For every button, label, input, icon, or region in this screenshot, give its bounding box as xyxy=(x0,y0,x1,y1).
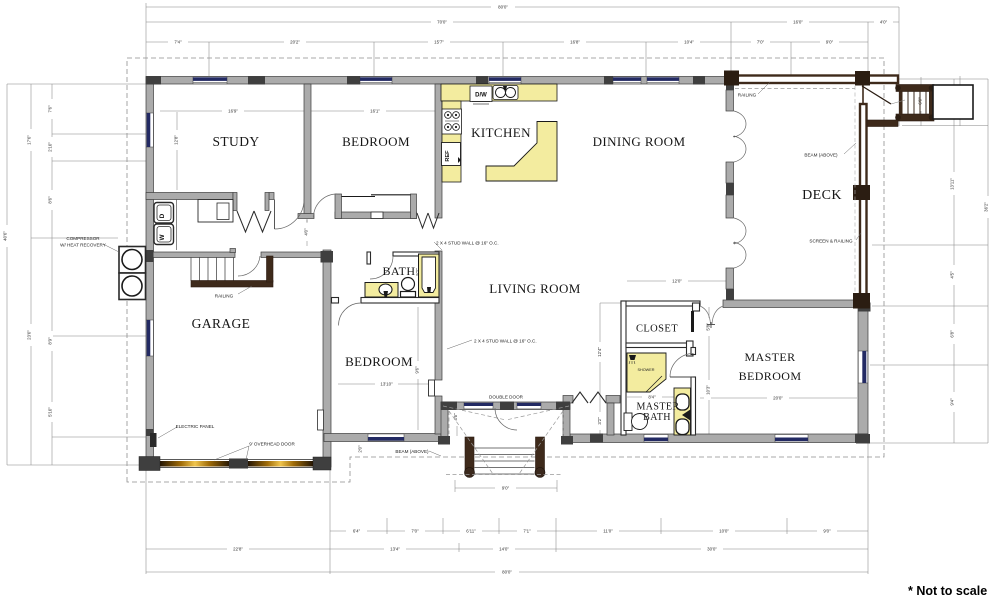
svg-text:MASTER: MASTER xyxy=(637,402,680,413)
svg-text:2 X 4 STUD WALL @ 16" O.C.: 2 X 4 STUD WALL @ 16" O.C. xyxy=(474,339,537,344)
svg-text:2 X 4 STUD WALL @ 16" O.C.: 2 X 4 STUD WALL @ 16" O.C. xyxy=(436,241,499,246)
svg-text:10'0": 10'0" xyxy=(719,529,729,534)
svg-text:GARAGE: GARAGE xyxy=(192,316,251,331)
svg-text:4'5": 4'5" xyxy=(950,271,955,279)
svg-text:80'0": 80'0" xyxy=(502,570,512,575)
svg-text:12'0": 12'0" xyxy=(672,279,682,284)
svg-text:ELECTRIC PANEL: ELECTRIC PANEL xyxy=(176,424,215,429)
svg-text:13'11": 13'11" xyxy=(950,178,955,190)
svg-text:* Not to scale: * Not to scale xyxy=(908,584,987,598)
svg-text:4'6": 4'6" xyxy=(453,413,458,421)
svg-text:8'6": 8'6" xyxy=(48,196,53,204)
svg-text:BEAM (ABOVE): BEAM (ABOVE) xyxy=(395,449,429,454)
svg-text:2'0": 2'0" xyxy=(358,445,363,453)
svg-text:RAILING: RAILING xyxy=(738,93,757,98)
svg-text:BATH: BATH xyxy=(383,264,416,278)
svg-text:BATH: BATH xyxy=(643,412,671,423)
svg-text:14'0": 14'0" xyxy=(499,547,509,552)
svg-text:D: D xyxy=(159,213,166,218)
svg-text:9'0": 9'0" xyxy=(823,529,831,534)
svg-text:7'1": 7'1" xyxy=(523,529,531,534)
svg-text:9'6": 9'6" xyxy=(415,366,420,374)
svg-text:6'4": 6'4" xyxy=(353,529,361,534)
svg-text:BEDROOM: BEDROOM xyxy=(345,354,413,369)
svg-text:4'0": 4'0" xyxy=(304,228,309,236)
svg-text:12'4": 12'4" xyxy=(597,347,602,357)
svg-text:5'10": 5'10" xyxy=(48,407,53,417)
svg-text:DOUBLE DOOR: DOUBLE DOOR xyxy=(489,395,524,400)
svg-text:40'6": 40'6" xyxy=(3,231,8,241)
svg-text:W: W xyxy=(159,234,166,240)
svg-text:MASTER: MASTER xyxy=(744,350,795,364)
svg-text:STUDY: STUDY xyxy=(212,134,259,149)
svg-text:DINING ROOM: DINING ROOM xyxy=(593,134,686,149)
svg-text:9'0": 9'0" xyxy=(826,40,834,45)
svg-text:36'2": 36'2" xyxy=(984,202,989,212)
svg-text:15'7": 15'7" xyxy=(434,40,444,45)
svg-text:2'10": 2'10" xyxy=(48,142,53,152)
svg-text:6'11": 6'11" xyxy=(466,529,476,534)
svg-text:SHOWER: SHOWER xyxy=(637,368,654,372)
svg-text:SCREEN & RAILING: SCREEN & RAILING xyxy=(809,239,853,244)
svg-text:4'0": 4'0" xyxy=(880,20,888,25)
svg-text:10'3": 10'3" xyxy=(706,385,711,395)
svg-text:3'2": 3'2" xyxy=(597,417,602,425)
svg-text:7'4": 7'4" xyxy=(174,40,182,45)
svg-text:LIVING ROOM: LIVING ROOM xyxy=(489,281,580,296)
svg-text:CLOSET: CLOSET xyxy=(636,324,678,335)
svg-text:13'10": 13'10" xyxy=(380,382,393,387)
svg-text:16'8": 16'8" xyxy=(570,40,580,45)
svg-text:REF: REF xyxy=(445,150,451,162)
svg-text:80'0": 80'0" xyxy=(498,5,508,10)
svg-text:30'0": 30'0" xyxy=(707,547,717,552)
svg-text:W/ HEAT RECOVERY: W/ HEAT RECOVERY xyxy=(60,243,106,248)
svg-text:22'8": 22'8" xyxy=(233,547,243,552)
svg-text:70'0": 70'0" xyxy=(437,20,447,25)
svg-text:12'8": 12'8" xyxy=(174,135,179,145)
svg-text:7'0": 7'0" xyxy=(757,40,765,45)
svg-text:16'9": 16'9" xyxy=(228,109,238,114)
svg-text:20'0": 20'0" xyxy=(773,396,783,401)
svg-text:8'4": 8'4" xyxy=(648,395,656,400)
svg-text:BEDROOM: BEDROOM xyxy=(739,369,802,383)
svg-text:D/W: D/W xyxy=(475,93,487,99)
svg-text:9' OVERHEAD DOOR: 9' OVERHEAD DOOR xyxy=(249,442,295,447)
svg-text:20'2": 20'2" xyxy=(290,40,300,45)
svg-text:BEAM (ABOVE): BEAM (ABOVE) xyxy=(804,153,838,158)
svg-text:7'0": 7'0" xyxy=(411,529,419,534)
svg-text:COMPRESSOR: COMPRESSOR xyxy=(66,236,100,241)
svg-text:7'6": 7'6" xyxy=(48,105,53,113)
svg-text:16'0": 16'0" xyxy=(793,20,803,25)
svg-text:8'9": 8'9" xyxy=(48,337,53,345)
svg-text:KITCHEN: KITCHEN xyxy=(471,125,531,140)
svg-text:17'6": 17'6" xyxy=(27,135,32,145)
svg-text:9'4": 9'4" xyxy=(950,398,955,406)
svg-text:16'1": 16'1" xyxy=(370,109,380,114)
svg-text:9'0": 9'0" xyxy=(502,486,510,491)
svg-text:23'0": 23'0" xyxy=(27,330,32,340)
svg-text:BEDROOM: BEDROOM xyxy=(342,134,410,149)
svg-text:6'8": 6'8" xyxy=(950,330,955,338)
svg-text:13'4": 13'4" xyxy=(390,547,400,552)
svg-text:RAILING: RAILING xyxy=(215,294,234,299)
svg-text:DECK: DECK xyxy=(802,188,842,203)
svg-text:11'0": 11'0" xyxy=(603,529,613,534)
svg-text:10'4": 10'4" xyxy=(684,40,694,45)
